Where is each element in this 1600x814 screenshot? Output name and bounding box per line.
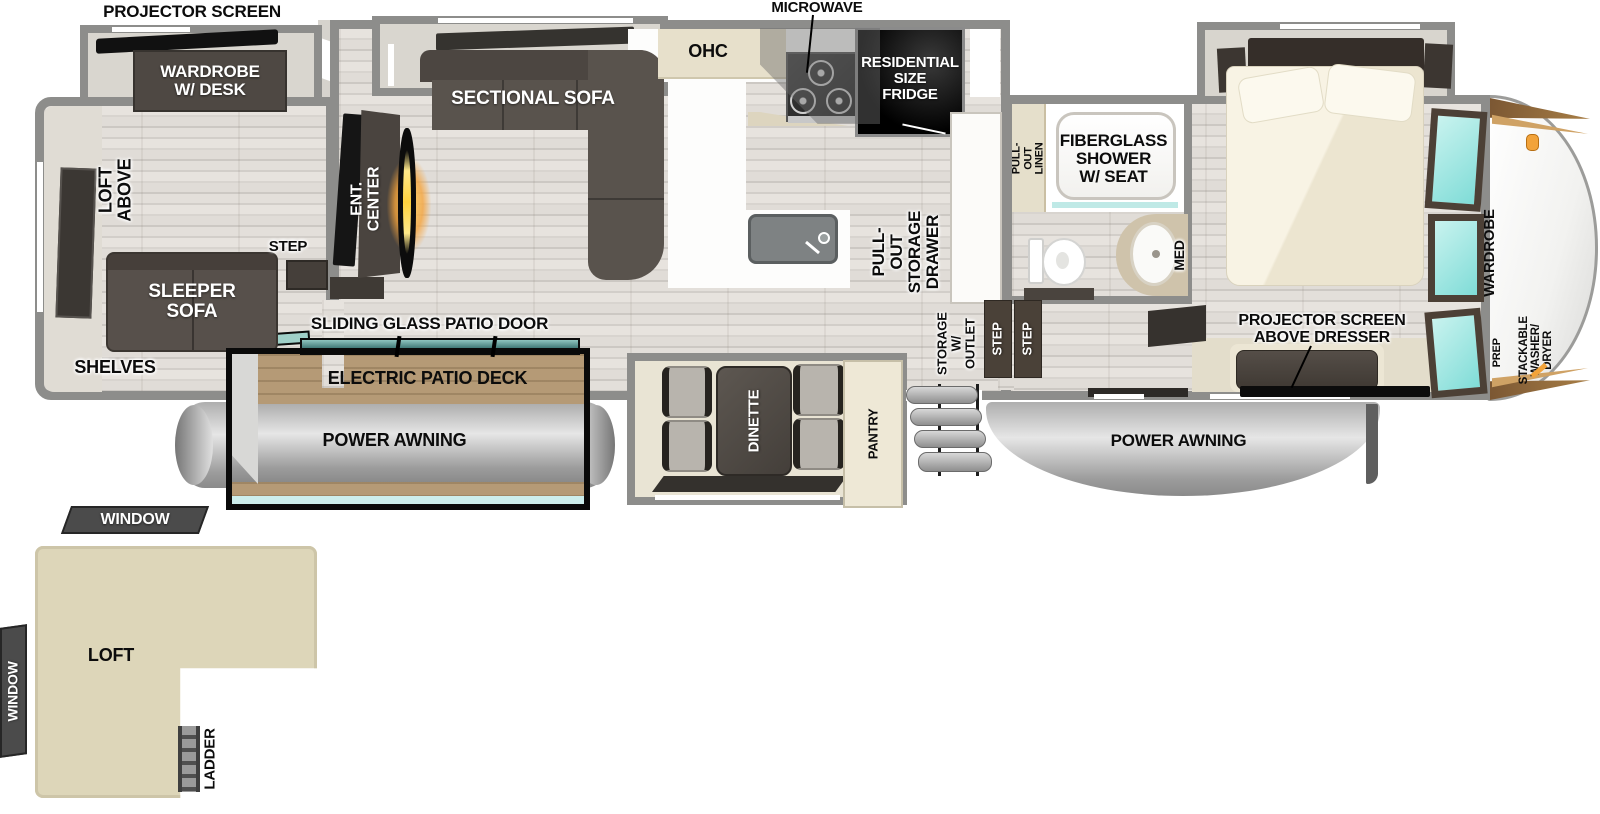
dinette-chair	[793, 418, 845, 470]
pantry-label: PANTRY	[848, 380, 898, 488]
power-awning-left-label: POWER AWNING	[312, 430, 477, 452]
projector-dresser-label: PROJECTOR SCREEN ABOVE DRESSER	[1220, 312, 1424, 348]
ohc-label: OHC	[668, 40, 748, 64]
dinette-chair	[662, 366, 712, 418]
window-strip	[655, 495, 840, 500]
shelves-label: SHELVES	[50, 357, 180, 379]
electric-deck-label: ELECTRIC PATIO DECK	[320, 368, 535, 390]
sliding-door-label: SLIDING GLASS PATIO DOOR	[282, 314, 577, 334]
pullout-storage-text: PULL-OUT STORAGE DRAWER	[870, 211, 942, 293]
microwave-label: MICROWAVE	[753, 0, 881, 16]
prep-text: PREP	[1492, 338, 1504, 367]
wardrobe-mirror-door	[1425, 108, 1488, 212]
entry-step	[918, 452, 992, 472]
fridge-label: RESIDENTIAL SIZE FRIDGE	[858, 33, 962, 125]
loft-platform	[35, 546, 317, 798]
sectional-side-window	[388, 44, 394, 86]
prep-label: PREP	[1486, 330, 1510, 376]
storage-outlet-label: STORAGE W/ OUTLET	[932, 298, 980, 390]
ladder-text: LADDER	[203, 728, 219, 789]
wardrobe-label: WARDROBE	[1476, 198, 1504, 308]
sleeper-sofa-label: SLEEPER SOFA	[116, 262, 268, 342]
washer-dryer-label: STACKABLE WASHER/ DRYER	[1506, 298, 1566, 402]
pullout-drawer-cabinet	[950, 112, 1002, 304]
bath-mat	[1024, 288, 1094, 300]
dinette-text: DINETTE	[746, 390, 762, 453]
wardrobe-desk-label: WARDROBE W/ DESK	[137, 52, 283, 110]
window-side-text: WINDOW	[6, 661, 21, 721]
exterior-patch-kitchen	[970, 29, 1000, 97]
ent-center-base	[330, 277, 384, 299]
window-strip	[438, 18, 633, 23]
pantry-text: PANTRY	[866, 409, 880, 460]
rv-floorplan: SLIDING GLASS PATIO DOOR ELECTRIC PATIO …	[0, 0, 1600, 814]
loft-above-label: LOFT ABOVE	[100, 125, 130, 255]
window-side-label: WINDOW	[0, 628, 27, 754]
wardrobe-mirror-door	[1424, 308, 1487, 399]
sectional-sofa-label: SECTIONAL SOFA	[438, 88, 628, 110]
shower-glass-edge	[1052, 202, 1178, 208]
step-upper-text: STEP	[991, 322, 1005, 355]
dinette-window	[652, 476, 847, 492]
window-strip	[1094, 394, 1144, 399]
med-text: MED	[1172, 240, 1187, 271]
shower-label: FIBERGLASS SHOWER W/ SEAT	[1036, 126, 1191, 192]
fireplace-flame	[403, 150, 411, 254]
step-lower-label: STEP	[1014, 302, 1042, 376]
projector-screen-label: PROJECTOR SCREEN	[92, 3, 292, 22]
step-upper-label: STEP	[984, 302, 1012, 376]
awning-end-cap-left	[175, 405, 213, 485]
nightstand-right	[1423, 43, 1453, 88]
loft-label: LOFT	[75, 645, 147, 667]
sink-faucet	[818, 232, 830, 244]
window-strip	[112, 27, 190, 32]
window-strip	[1280, 24, 1420, 29]
wardrobe-text: WARDROBE	[1482, 209, 1498, 297]
window-top-label: WINDOW	[70, 508, 200, 532]
sectional-sofa-arm	[588, 50, 664, 280]
pillow-right	[1323, 63, 1416, 123]
ent-center-label: ENT. CENTER	[350, 128, 382, 270]
entry-step	[914, 430, 986, 448]
loft-above-text: LOFT ABOVE	[96, 158, 134, 221]
rear-window-strip	[37, 162, 43, 312]
power-awning-right-label: POWER AWNING	[1096, 430, 1261, 452]
rear-step-box	[286, 260, 328, 290]
dinette-chair	[662, 420, 712, 472]
awning-right-end	[1366, 404, 1378, 484]
storage-outlet-text: STORAGE W/ OUTLET	[935, 313, 976, 376]
dinette-chair	[793, 364, 845, 416]
rear-tv	[55, 167, 96, 318]
ladder-label: LADDER	[197, 720, 225, 798]
step-lower-text: STEP	[1021, 322, 1035, 355]
rear-step-label: STEP	[258, 238, 318, 256]
pullout-storage-label: PULL-OUT STORAGE DRAWER	[868, 192, 944, 312]
dinette-label: DINETTE	[718, 370, 790, 472]
med-cabinet-label: MED	[1166, 226, 1192, 284]
bedroom-tv	[1148, 305, 1206, 347]
ent-center-text: ENT. CENTER	[349, 167, 383, 232]
projector-screen-bedroom	[1240, 386, 1430, 397]
cap-handle	[1526, 134, 1539, 151]
sink-faucet-dot	[1152, 250, 1160, 258]
entry-step	[910, 408, 982, 426]
toilet-seat-detail	[1056, 252, 1069, 269]
